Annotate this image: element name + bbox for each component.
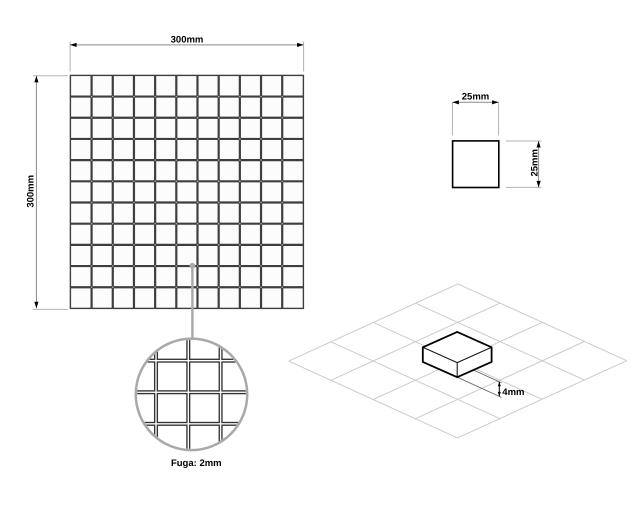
svg-text:25mm: 25mm <box>529 149 540 176</box>
svg-text:Fuga: 2mm: Fuga: 2mm <box>171 458 222 469</box>
svg-text:300mm: 300mm <box>171 34 204 45</box>
svg-text:4mm: 4mm <box>502 387 524 398</box>
svg-text:300mm: 300mm <box>26 175 37 208</box>
svg-text:25mm: 25mm <box>462 92 489 103</box>
